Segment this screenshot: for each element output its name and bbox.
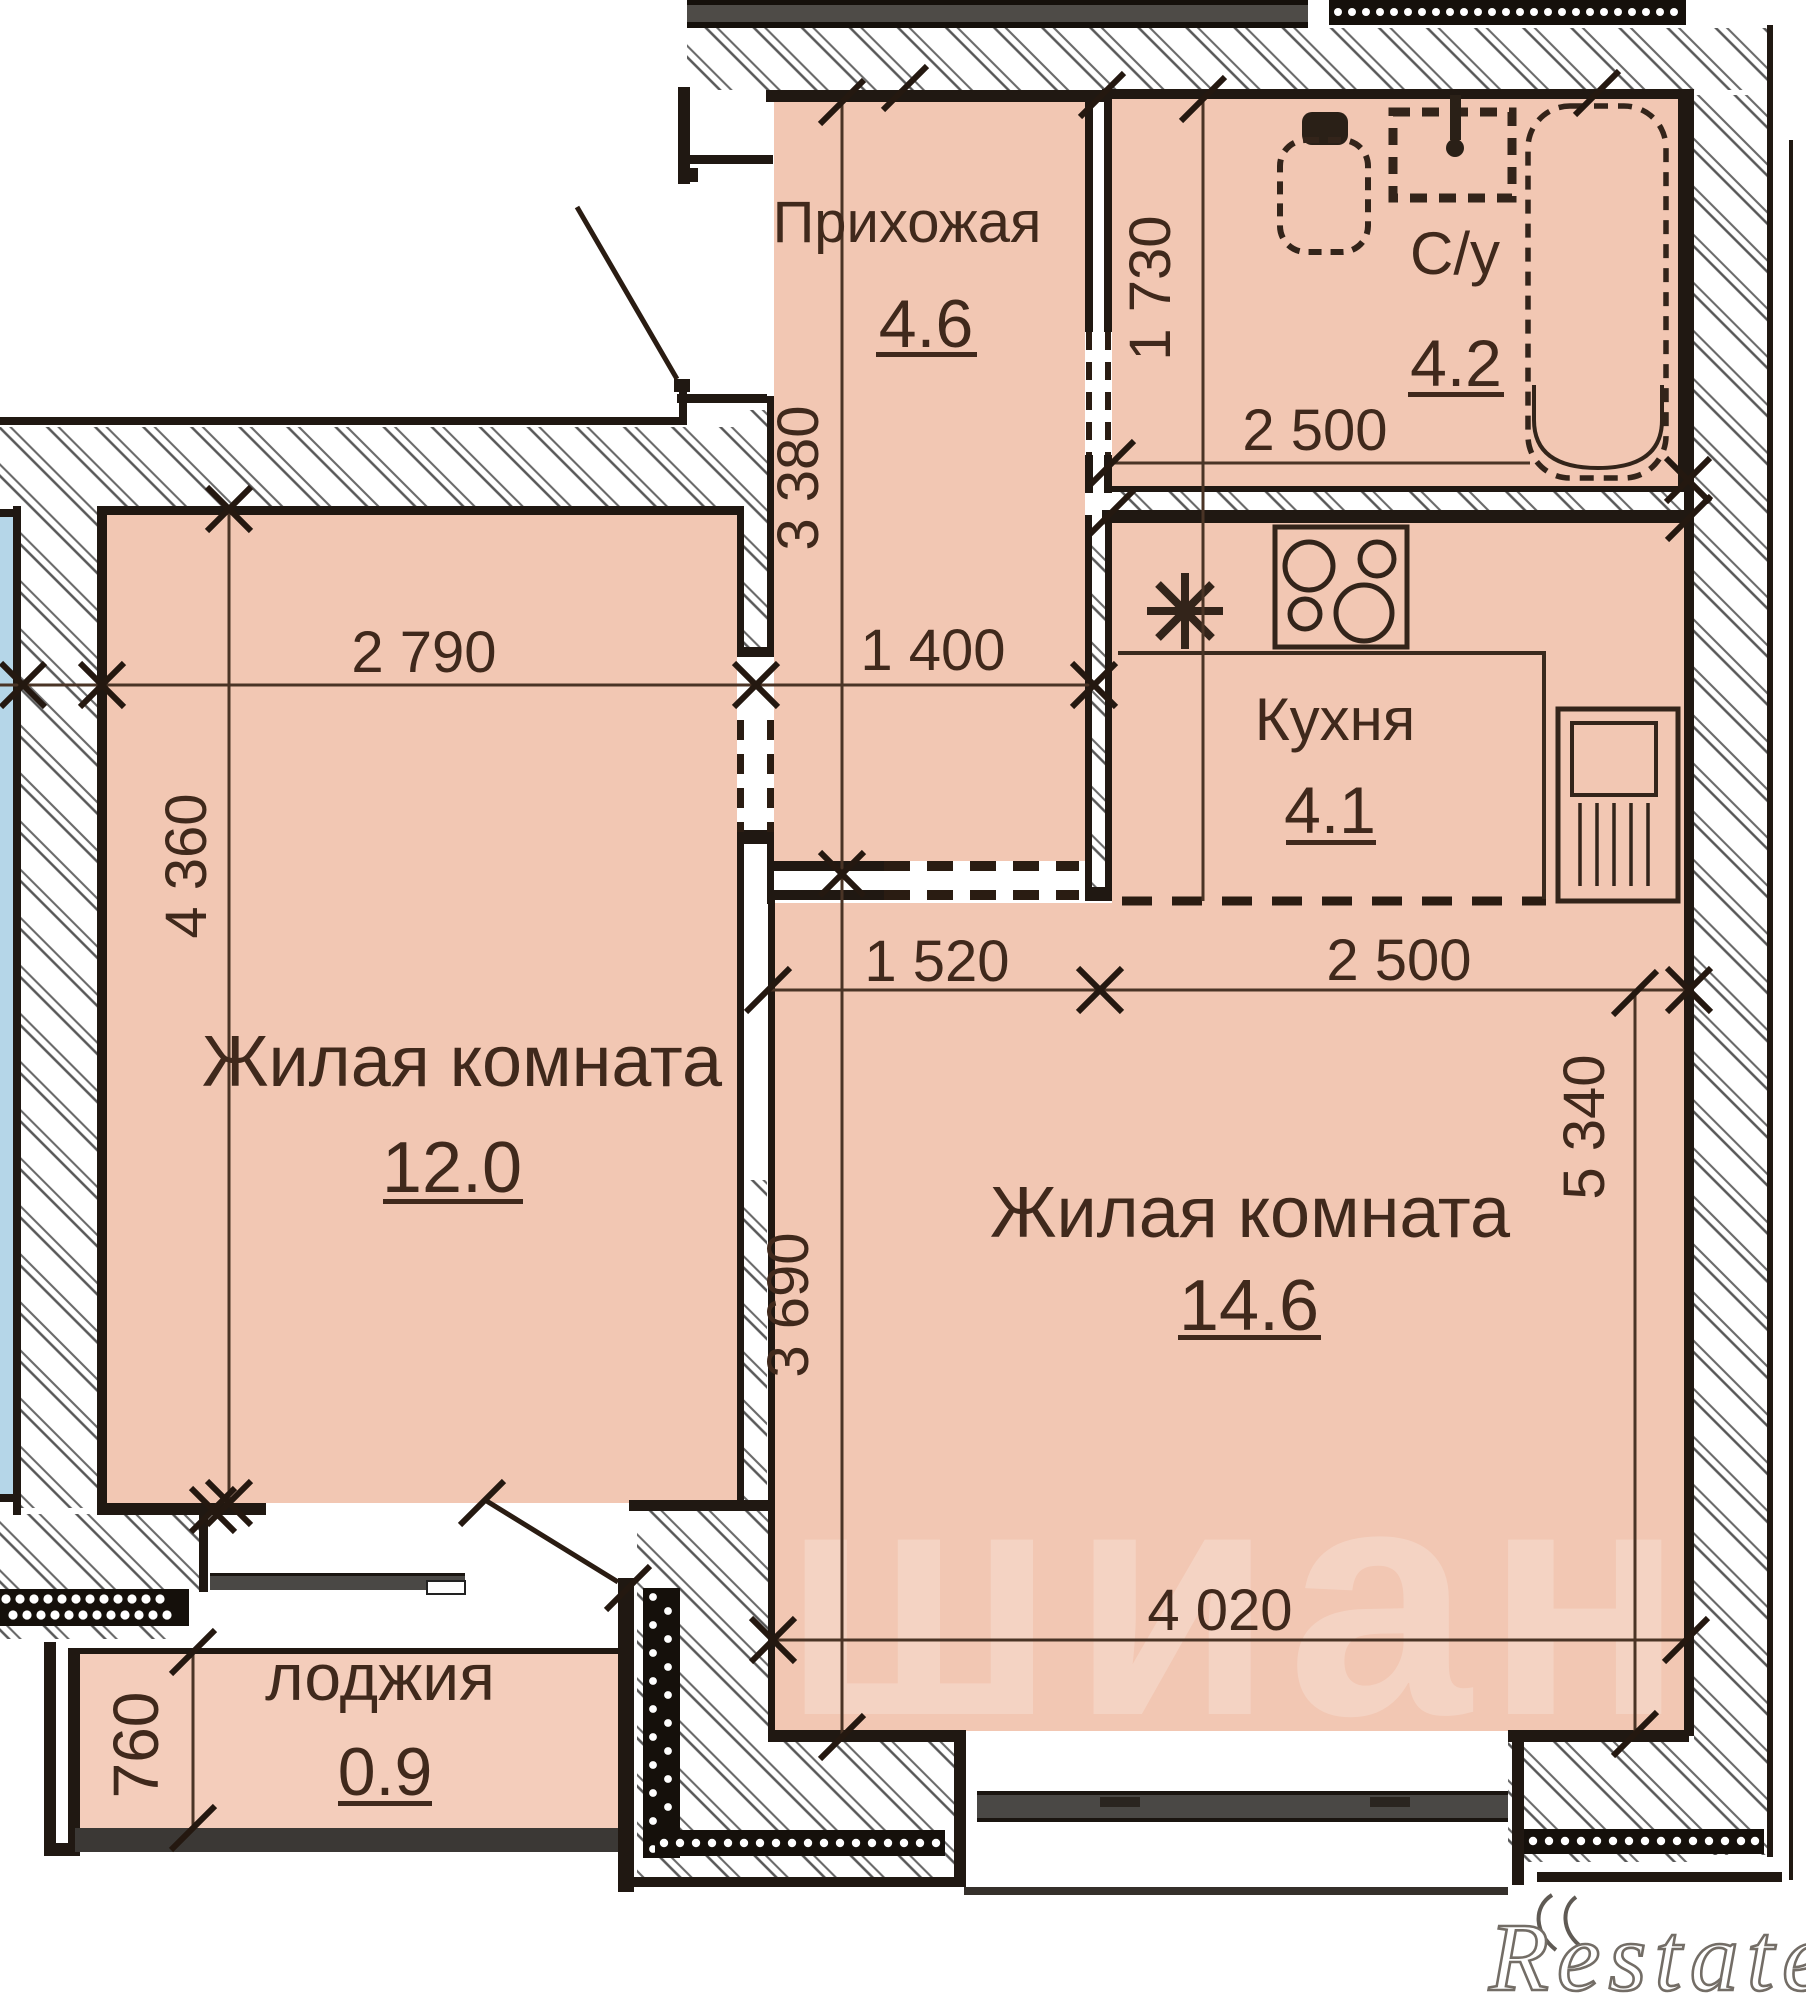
svg-text:Прихожая: Прихожая xyxy=(773,190,1042,255)
svg-text:Кухня: Кухня xyxy=(1255,686,1416,753)
svg-text:С/у: С/у xyxy=(1410,220,1500,287)
svg-text:2 500: 2 500 xyxy=(1242,398,1387,463)
svg-text:3 380: 3 380 xyxy=(766,405,831,550)
svg-text:1 400: 1 400 xyxy=(860,618,1005,683)
svg-text:Restate: Restate xyxy=(1488,1904,1806,2000)
svg-text:4.6: 4.6 xyxy=(879,286,974,362)
svg-text:Жилая комната: Жилая комната xyxy=(990,1173,1511,1253)
svg-text:4.2: 4.2 xyxy=(1410,326,1502,400)
svg-text:2 500: 2 500 xyxy=(1326,928,1471,993)
svg-text:Жилая комната: Жилая комната xyxy=(202,1022,723,1102)
svg-text:1 730: 1 730 xyxy=(1118,215,1183,360)
svg-text:5 340: 5 340 xyxy=(1552,1054,1617,1199)
svg-text:лоджия: лоджия xyxy=(265,1640,495,1714)
svg-text:4.1: 4.1 xyxy=(1284,773,1376,847)
svg-text:14.6: 14.6 xyxy=(1179,1266,1319,1346)
svg-text:12.0: 12.0 xyxy=(382,1128,522,1208)
svg-text:1 520: 1 520 xyxy=(864,929,1009,994)
svg-text:760: 760 xyxy=(100,1692,172,1799)
svg-text:4 020: 4 020 xyxy=(1147,1578,1292,1643)
svg-text:0.9: 0.9 xyxy=(338,1734,433,1810)
svg-text:3 690: 3 690 xyxy=(756,1232,821,1377)
svg-text:4 360: 4 360 xyxy=(154,793,219,938)
svg-text:2 790: 2 790 xyxy=(351,620,496,685)
